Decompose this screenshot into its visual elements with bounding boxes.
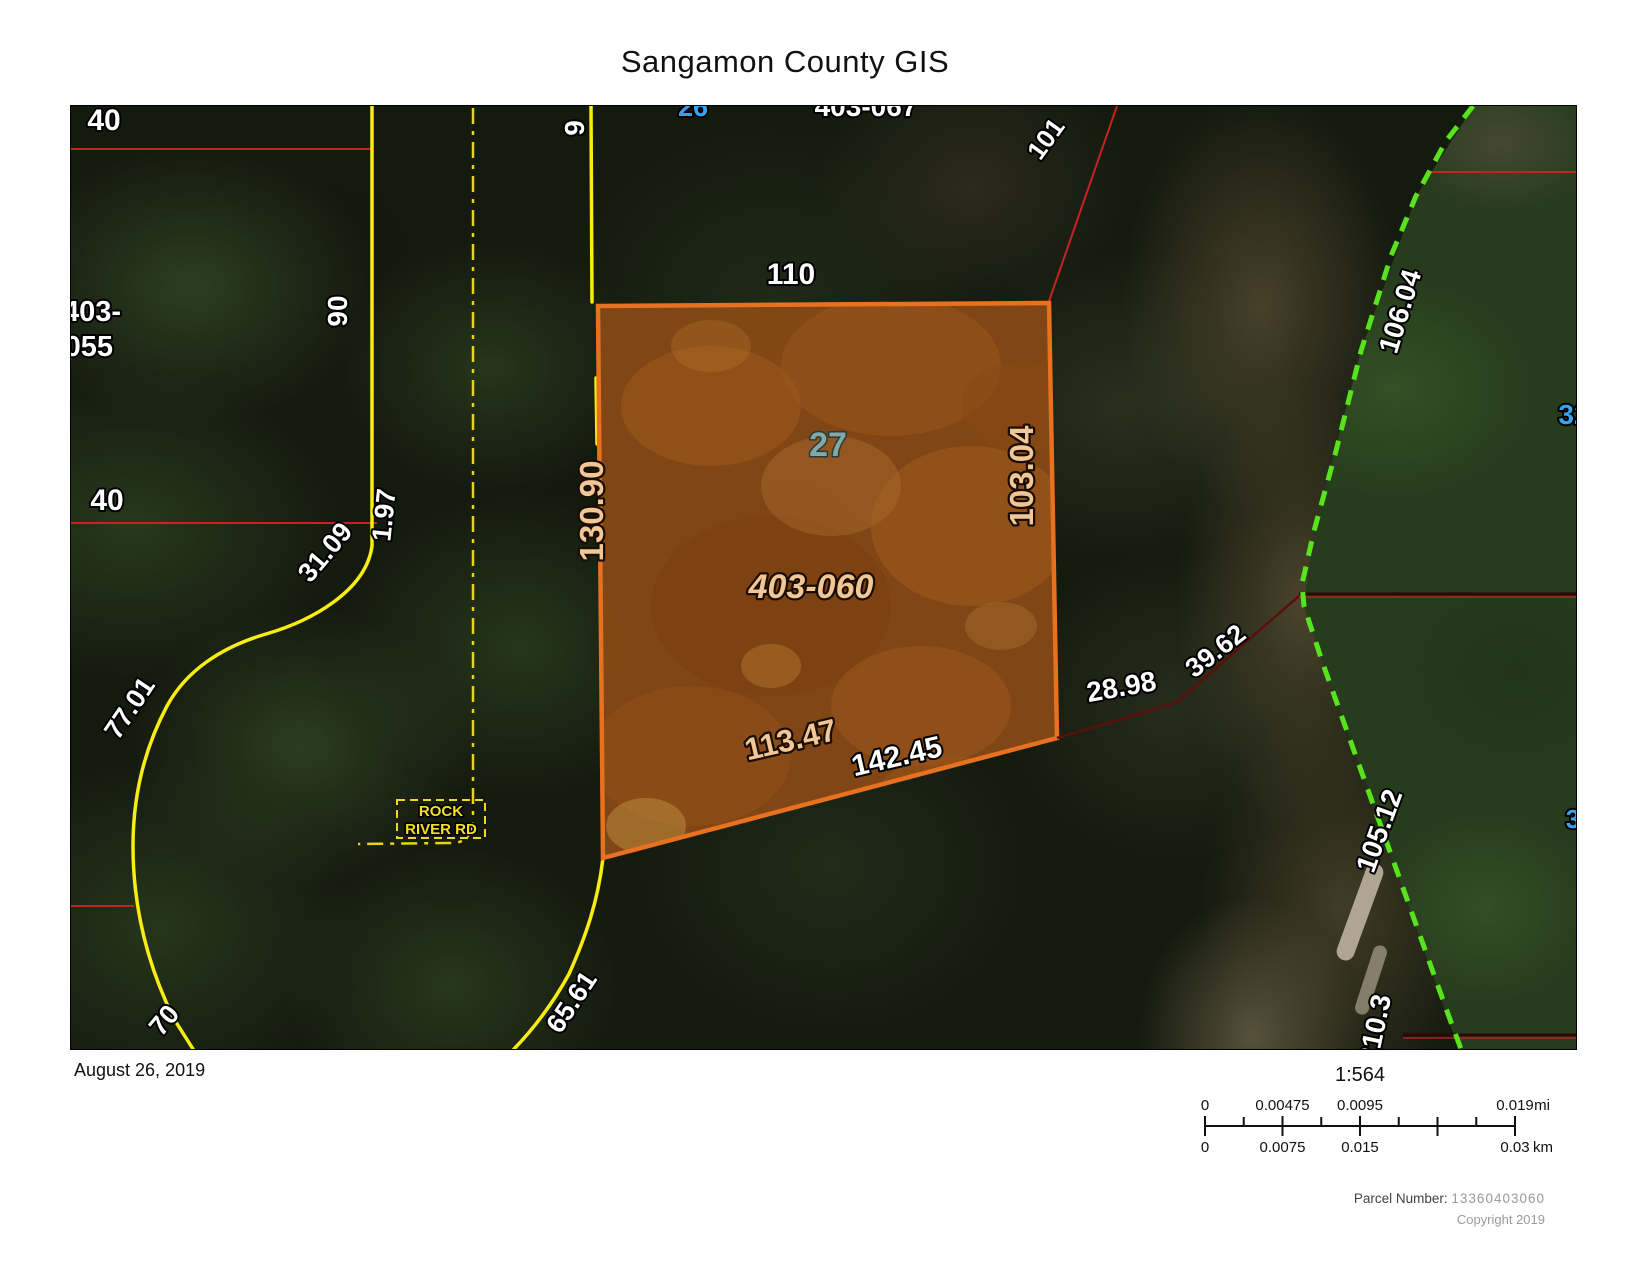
dim-110: 110 — [767, 258, 815, 291]
scale-ratio: 1:564 — [1195, 1064, 1525, 1087]
scale-mi-3: 0.019 — [1496, 1097, 1534, 1114]
scale-mi-unit: mi — [1534, 1097, 1550, 1114]
parcel-id-label: 403-060 — [748, 568, 874, 606]
page: Sangamon County GIS — [0, 0, 1650, 1275]
map-canvas[interactable]: ROCK RIVER RD — [70, 105, 1577, 1050]
parcel-403-055-line1: 403- — [71, 296, 121, 328]
dim-103-04: 103.04 — [1003, 425, 1040, 527]
dim-31-09: 31.09 — [292, 517, 358, 588]
dim-70: 70 — [143, 999, 185, 1041]
scale-mi-2: 0.0095 — [1337, 1097, 1383, 1114]
dim-101: 101 — [1021, 112, 1071, 165]
road-name-line2: RIVER RD — [405, 821, 477, 838]
lot-32: 32 — [1558, 399, 1576, 430]
scale-km-3: 0.03 — [1500, 1139, 1529, 1156]
green-dashed-boundary — [1302, 106, 1473, 1049]
dim-90: 90 — [322, 295, 353, 326]
parcel-403-055-line2: 055 — [71, 331, 113, 363]
scale-bar: 0 0.00475 0.0095 0.019 mi 0 0.0075 0.015… — [1190, 1092, 1570, 1162]
dim-130-90: 130.90 — [573, 461, 610, 562]
dark-red-boundary-lines — [1057, 594, 1576, 1038]
lot-26: 26 — [678, 106, 708, 122]
dim-210: 210.3 — [1352, 992, 1397, 1049]
parcel-number-label: Parcel Number: — [1354, 1191, 1448, 1206]
map-date: August 26, 2019 — [74, 1060, 205, 1081]
road-name-line1: ROCK — [419, 803, 463, 820]
dim-65-61: 65.61 — [540, 966, 603, 1039]
parcel-403-067: 403-067 — [815, 106, 918, 122]
parcel-number-block: Parcel Number: 13360403060 Copyright 201… — [1354, 1188, 1545, 1230]
map-overlay: ROCK RIVER RD — [71, 106, 1576, 1049]
scale-mi-1: 0.00475 — [1255, 1097, 1309, 1114]
lot-3: 3 — [1566, 804, 1576, 834]
dim-1-97: 1.97 — [366, 487, 401, 542]
dim-77-01: 77.01 — [98, 672, 161, 745]
road-edge-lines — [133, 106, 603, 1049]
dim-9: 9 — [559, 120, 590, 136]
page-title: Sangamon County GIS — [70, 44, 1500, 80]
scale-mi-0: 0 — [1201, 1097, 1209, 1114]
dim-105-12: 105.12 — [1350, 785, 1408, 876]
copyright: Copyright 2019 — [1354, 1210, 1545, 1231]
lot-27: 27 — [809, 426, 847, 464]
dim-40-lower: 40 — [90, 484, 123, 517]
scale-km-1: 0.0075 — [1260, 1139, 1306, 1156]
dim-40-upper: 40 — [87, 106, 120, 137]
dim-106-04: 106.04 — [1373, 265, 1428, 356]
dim-28-98: 28.98 — [1084, 665, 1158, 708]
parcel-number-value: 13360403060 — [1451, 1191, 1545, 1206]
scale-km-unit: km — [1533, 1139, 1553, 1156]
scale-km-2: 0.015 — [1341, 1139, 1379, 1156]
road-centerline — [358, 108, 473, 844]
scale-km-0: 0 — [1201, 1139, 1209, 1156]
dim-39-62: 39.62 — [1180, 618, 1252, 683]
